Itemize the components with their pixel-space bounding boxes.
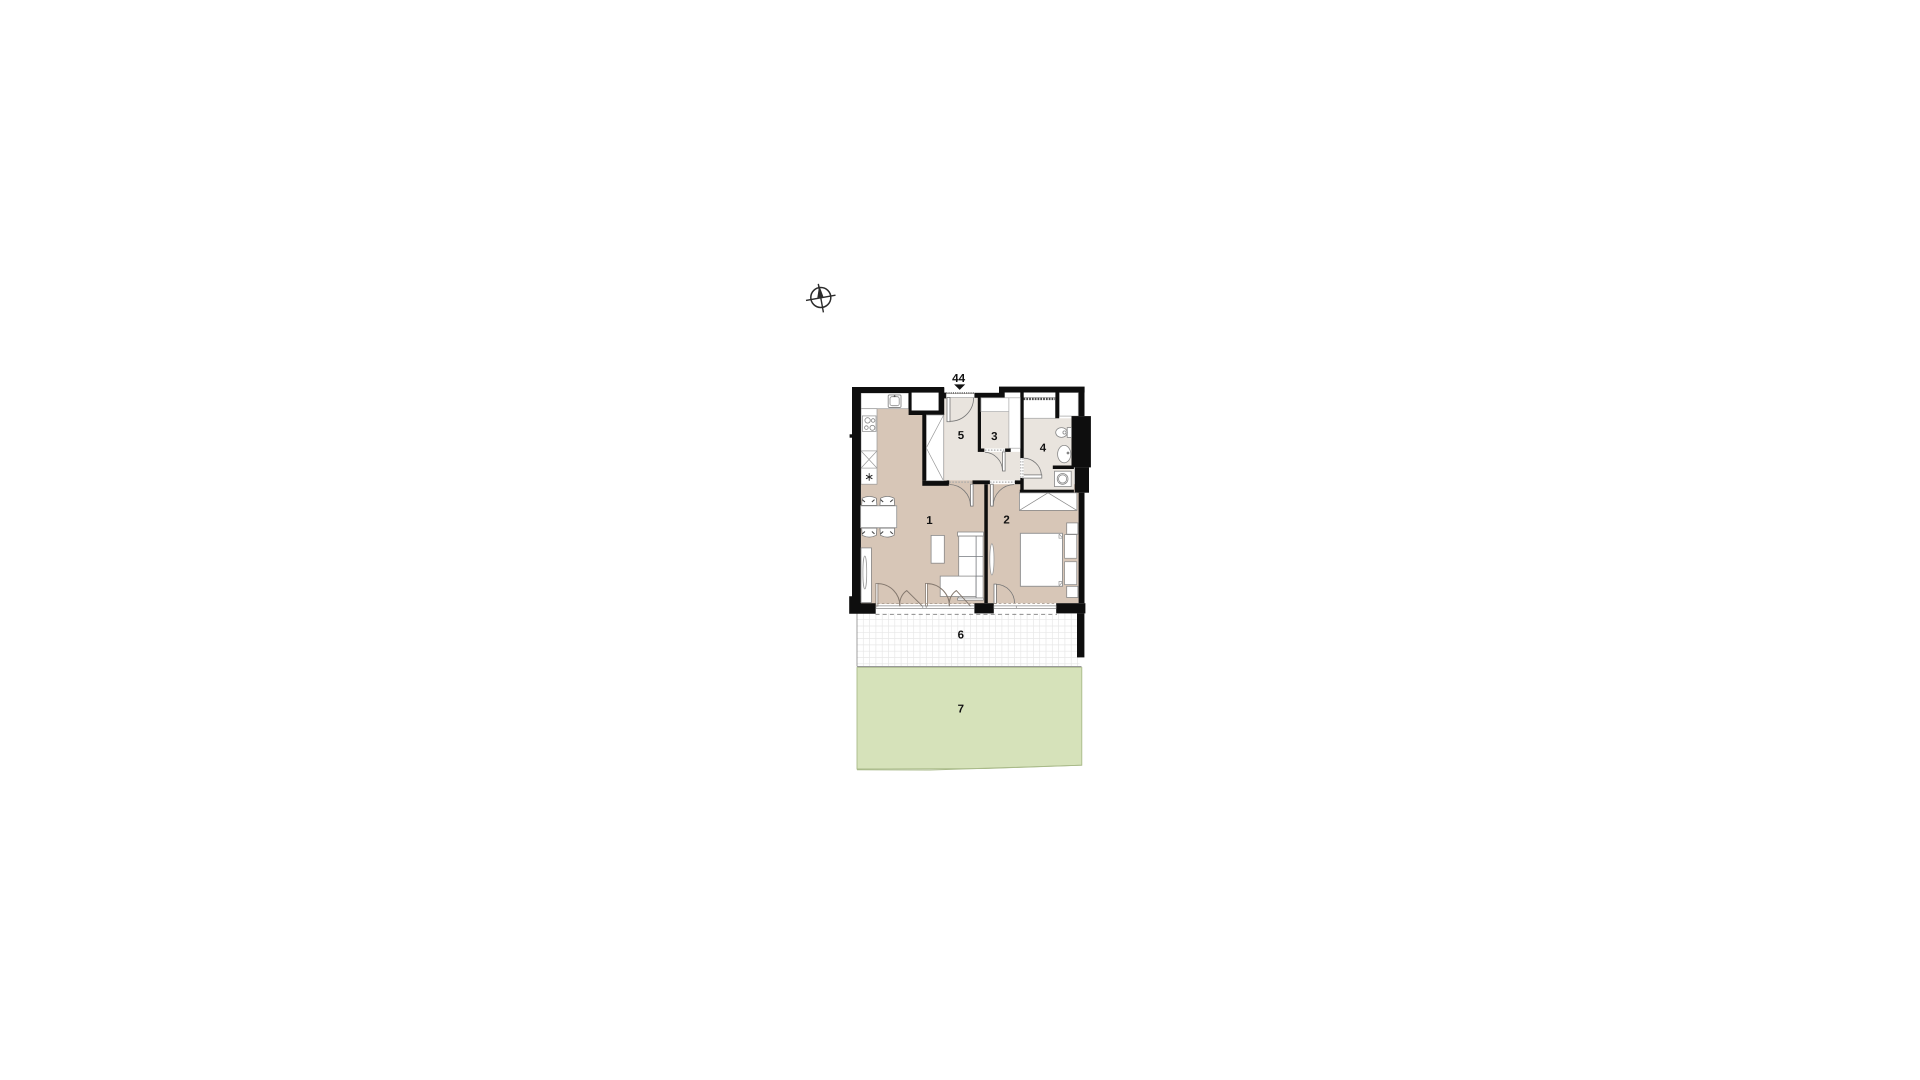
- svg-text:3: 3: [991, 431, 997, 443]
- svg-text:2: 2: [1003, 515, 1009, 527]
- svg-text:1: 1: [926, 515, 933, 527]
- svg-text:4: 4: [1040, 442, 1047, 454]
- svg-text:7: 7: [958, 704, 964, 716]
- svg-text:6: 6: [958, 630, 964, 642]
- svg-text:5: 5: [958, 430, 965, 442]
- svg-text:44: 44: [952, 372, 966, 385]
